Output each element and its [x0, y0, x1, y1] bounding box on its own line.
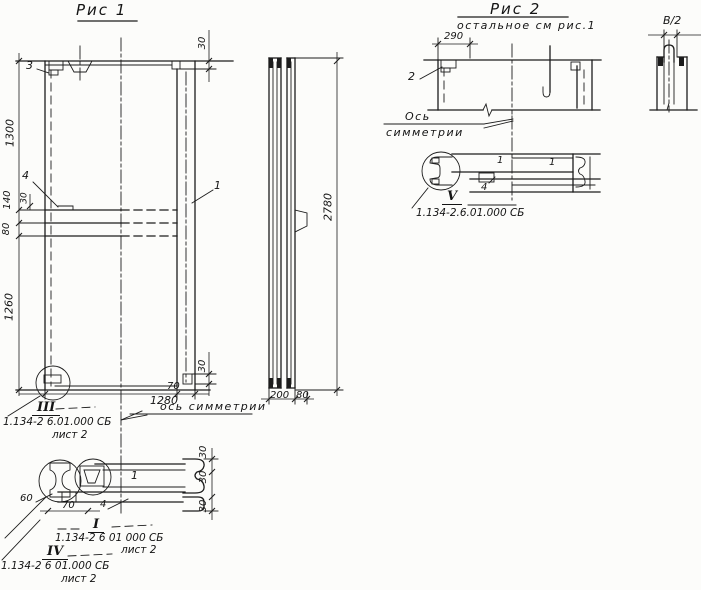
fig1-title: Рис 1 — [76, 3, 127, 18]
fig2-axis-word-2: симметрии — [386, 127, 464, 138]
fig2-axis-word-1: Ось — [405, 111, 431, 122]
section-i-item-4-label: 4 — [100, 500, 106, 510]
detail-b2-view — [648, 30, 701, 112]
fig1-front-view — [8, 21, 252, 516]
fig1-dim-30-notch: 30 — [21, 192, 30, 203]
fig1-dim-1260: 1260 — [4, 293, 15, 321]
section-i-sheet: лист 2 — [121, 545, 156, 556]
fig2-subtitle: остальное см рис.1 — [457, 20, 596, 31]
fig1-item-3-label: 3 — [26, 60, 33, 71]
section-i-dim-30-c: 30 — [199, 500, 209, 513]
fig2-title: Рис 2 — [490, 2, 541, 17]
fig2-item-2-label: 2 — [408, 71, 415, 82]
section-i-dim-30-b: 30 — [199, 471, 209, 484]
section-i-dim-70: 70 — [62, 501, 75, 511]
section-i-doc: 1.134-2 6 01 000 СБ — [55, 533, 164, 544]
fig1-dim-30-top: 30 — [198, 37, 208, 50]
section-iv-roman: IV — [42, 545, 68, 560]
fig1-dim-80: 80 — [2, 223, 12, 236]
side-dim-2780: 2780 — [323, 193, 334, 221]
fig1-detail-iii-doc: 1.134-2 6.01.000 СБ — [3, 417, 112, 428]
side-dim-80: 80 — [296, 391, 309, 401]
section-iv-sheet: лист 2 — [61, 574, 96, 585]
fig1-axis-note: ось симметрии — [160, 401, 267, 412]
fig2-item-1-label-left: 1 — [497, 156, 503, 166]
section-i-dim-60: 60 — [20, 494, 33, 504]
fig1-item-4-label: 4 — [22, 170, 29, 181]
blueprint-canvas: Рис 1 3 4 1 1300 140 30 80 1260 30 30 12… — [0, 0, 701, 590]
fig1-dim-30-bottom: 30 — [198, 360, 208, 373]
fig1-dim-70: 70 — [167, 382, 180, 392]
fig2-detail-v-roman: V — [442, 190, 462, 205]
section-iv-doc: 1.134-2 6 01.000 СБ — [1, 561, 110, 572]
section-i-item-1-label: 1 — [131, 470, 138, 481]
fig1-dim-1300: 1300 — [5, 119, 16, 147]
fig2-item-1-label-right: 1 — [549, 158, 555, 168]
fig1-detail-iii-sheet: лист 2 — [52, 430, 87, 441]
fig2-item-4-label: 4 — [481, 183, 487, 193]
side-view — [261, 52, 343, 404]
fig1-item-1-label: 1 — [214, 180, 221, 191]
section-i-dim-30-a: 30 — [199, 446, 209, 459]
fig1-detail-iii-roman: III — [32, 401, 60, 416]
detail-b2-label: В/2 — [663, 15, 681, 26]
fig2-dim-290: 290 — [444, 32, 463, 42]
section-i-roman: I — [88, 518, 104, 533]
side-dim-200: 200 — [270, 391, 289, 401]
fig1-dim-140: 140 — [3, 190, 13, 209]
fig2-detail-v-doc: 1.134-2.6.01.000 СБ — [416, 208, 525, 219]
